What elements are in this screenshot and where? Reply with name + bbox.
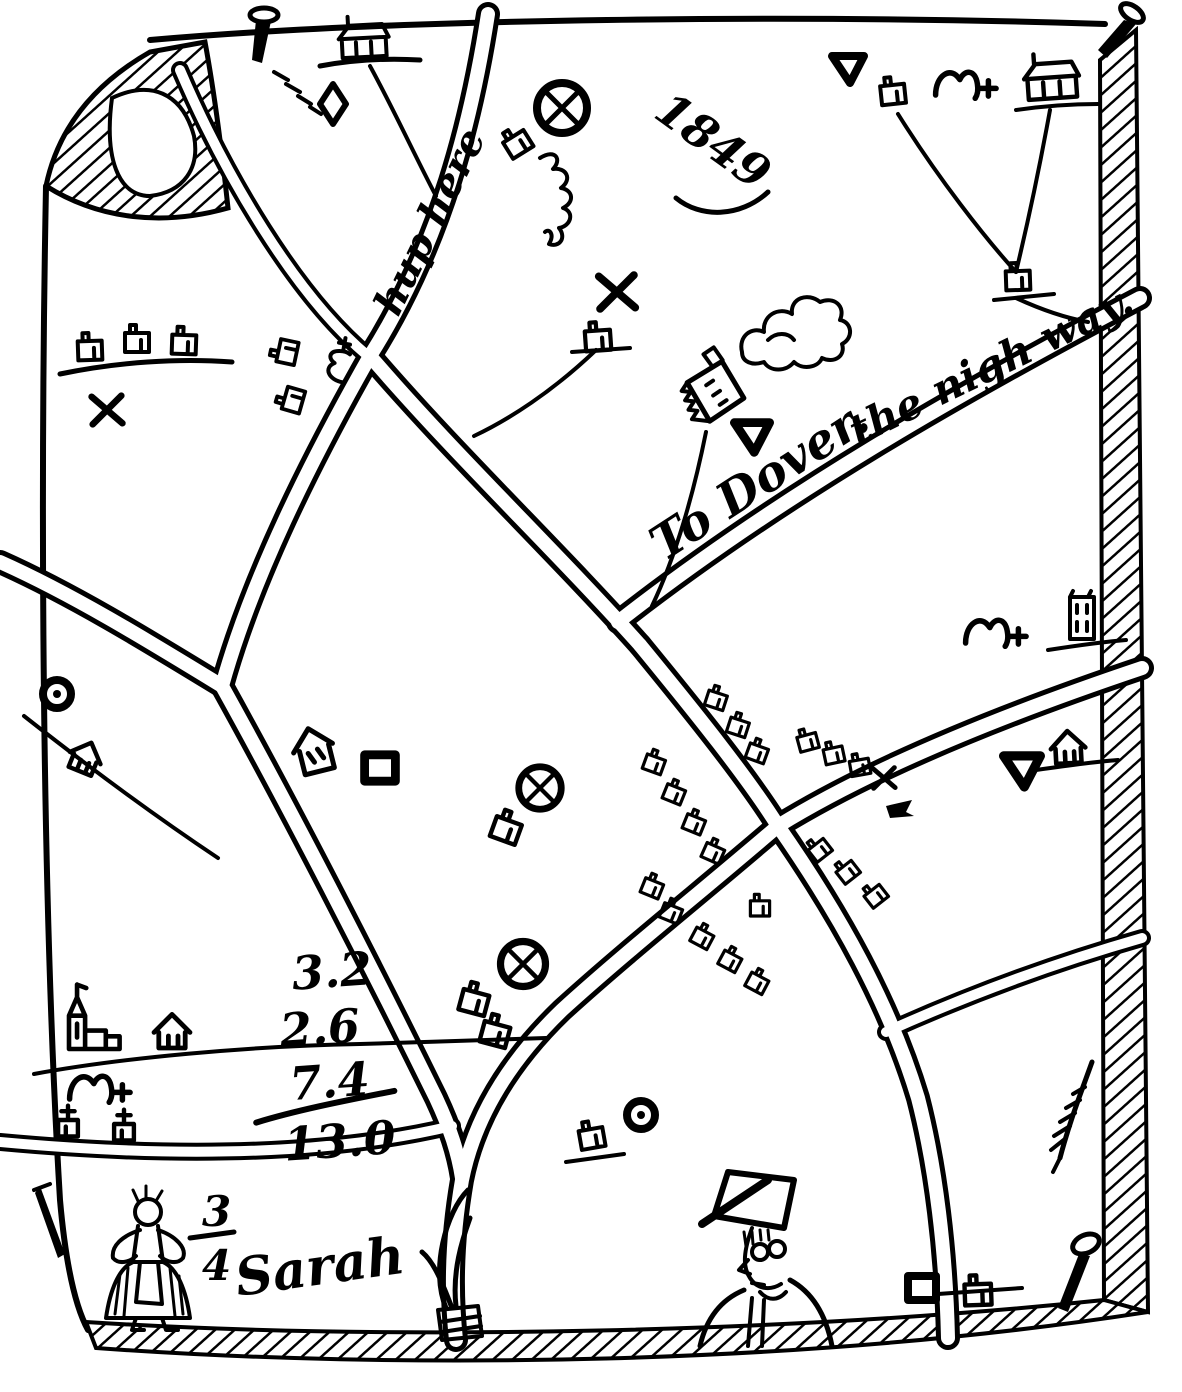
sum-addend-2: 2.6 [277, 998, 362, 1058]
footpath [24, 716, 218, 858]
house-icon [879, 76, 906, 105]
triangle-icon [832, 56, 864, 83]
ring-dot-icon [627, 1101, 655, 1129]
house-icon [704, 684, 729, 710]
tower-icon [1070, 591, 1094, 639]
fraction-denominator: 4 [202, 1241, 231, 1290]
house-icon [745, 966, 772, 994]
house-icon [125, 325, 149, 352]
barn-icon [1022, 51, 1080, 100]
house-icon [750, 894, 769, 916]
label-year: 1849 [646, 81, 781, 200]
diamond-icon [320, 84, 346, 124]
square-icon [908, 1276, 936, 1300]
cross-box-icon [114, 1110, 134, 1141]
house-icon [269, 337, 299, 365]
house-icon [458, 981, 491, 1017]
house-icon [584, 321, 611, 351]
house-icon [662, 778, 688, 805]
map-canvas: hup here 1849 To Dover. the nigh way. 3.… [0, 0, 1182, 1392]
house-icon [499, 123, 534, 159]
feather-icon [1051, 1062, 1092, 1172]
baseline [60, 361, 232, 375]
fraction-numerator: 3 [202, 1187, 231, 1236]
nail-icon [250, 8, 321, 114]
border-bottom-hatch [86, 1300, 1148, 1361]
arrow-roof-house-icon [289, 724, 338, 776]
house-icon [718, 944, 745, 972]
top-hat-man-icon [700, 1172, 832, 1346]
house-icon [577, 1119, 605, 1150]
house-icon [640, 872, 666, 899]
smoke-icon [741, 297, 850, 369]
house-icon [172, 327, 197, 355]
footpath [474, 350, 596, 436]
bridge-arch-icon [70, 1076, 131, 1102]
house-icon [65, 737, 107, 778]
house-icon [745, 737, 770, 764]
hand-drawn-map: hup here 1849 To Dover. the nigh way. 3.… [0, 0, 1182, 1392]
year-underline [676, 192, 768, 212]
footpath [898, 114, 1016, 272]
square-icon [365, 755, 396, 781]
house-icon [1050, 730, 1086, 764]
x-mark-icon [599, 275, 635, 309]
factory-icon [671, 344, 747, 427]
wheel-cross-icon [537, 83, 587, 133]
label-sarah: Sarah [231, 1225, 408, 1309]
house-icon [822, 740, 845, 765]
fraction-bar [190, 1232, 234, 1238]
wheel-cross-icon [519, 767, 562, 810]
sum-addend-1: 3.2 [290, 941, 374, 1000]
fraction-three-quarters: 3 4 [190, 1187, 234, 1290]
house-icon [490, 808, 525, 845]
wheel-cross-icon [501, 942, 546, 987]
baseline [1016, 104, 1098, 110]
sum-total: 13.0 [282, 1110, 398, 1172]
label-nigh-way: the nigh way. [841, 275, 1141, 455]
baseline [566, 1154, 624, 1162]
woman-figure-icon [106, 1186, 190, 1330]
house-icon [860, 879, 888, 908]
baseline [994, 294, 1054, 300]
arrow-icon [886, 800, 914, 818]
label-hup-here: hup here [365, 121, 495, 322]
border-top-line [150, 19, 1105, 40]
triangle-icon [1004, 756, 1041, 787]
bridge-arch-icon [936, 72, 997, 98]
barn-icon [338, 15, 390, 59]
house-icon [690, 921, 717, 949]
cross-box-icon [58, 1106, 78, 1137]
house-icon [726, 711, 751, 737]
smoke-icon [540, 154, 571, 245]
bridge-arch-icon [966, 620, 1027, 646]
house-icon [832, 855, 860, 884]
house-icon [154, 1014, 190, 1048]
house-icon [795, 726, 819, 752]
ring-dot-icon [43, 680, 71, 708]
church-icon [69, 985, 120, 1049]
footpath [1016, 110, 1050, 272]
house-icon [274, 385, 305, 414]
x-mark-icon [92, 396, 123, 425]
house-icon [642, 748, 667, 775]
house-icon [77, 333, 102, 361]
house-icon [682, 808, 708, 835]
house-icon [1005, 263, 1030, 291]
